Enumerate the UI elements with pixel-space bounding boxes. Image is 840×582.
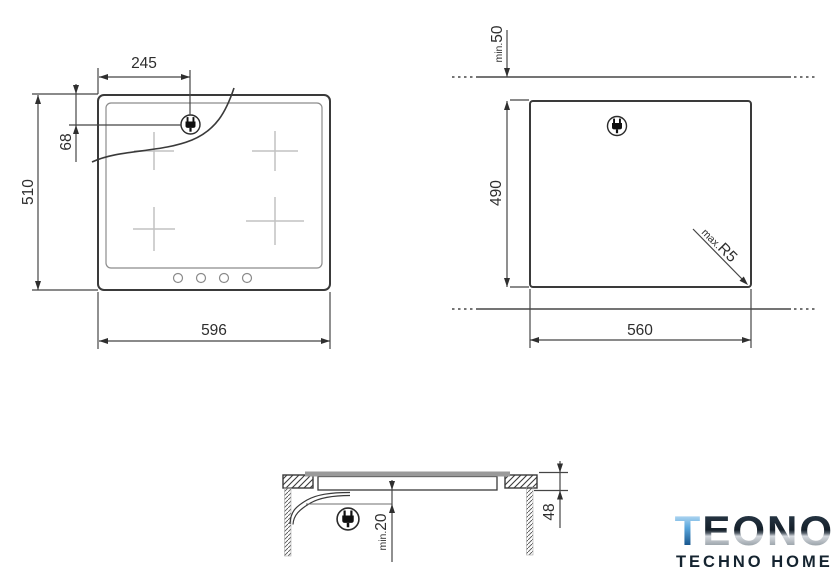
dim-cutout-height: 490 — [488, 100, 529, 287]
arrowhead — [181, 74, 190, 80]
power-plug-icon — [608, 117, 627, 136]
installation-section-view: min.20 48 — [283, 461, 568, 562]
dim-plug-offset-x-label: 245 — [131, 55, 157, 72]
dim-value: 50 — [489, 25, 506, 43]
arrowhead — [35, 281, 41, 290]
dim-hob-depth-label: 48 — [541, 503, 558, 520]
control-knob — [197, 274, 206, 283]
arrowhead — [742, 337, 751, 343]
arrowhead — [557, 491, 563, 500]
counter-block-right — [505, 475, 537, 488]
control-knob — [220, 274, 229, 283]
dim-hob-width-label: 596 — [201, 322, 227, 339]
dim-cutout-width-label: 560 — [627, 322, 653, 339]
arrowhead — [73, 85, 79, 94]
hob-top-view: 245 68 510 596 — [20, 55, 330, 349]
control-knob — [243, 274, 252, 283]
brand-logo: TEONO TECHNO HOME — [675, 512, 834, 570]
arrowhead — [504, 278, 510, 287]
installation-drawing: 245 68 510 596 — [0, 0, 840, 582]
counter-block-left — [283, 475, 313, 488]
dim-cutout-width: 560 — [530, 289, 751, 348]
dim-rear-clearance: min.50 — [489, 25, 510, 77]
power-plug-icon — [181, 115, 200, 134]
dim-value: 20 — [373, 513, 390, 531]
arrowhead — [530, 337, 539, 343]
arrowhead — [99, 338, 108, 344]
brand-name: TEONO — [675, 512, 834, 551]
dim-prefix: min. — [377, 531, 389, 551]
dim-cutout-height-label: 490 — [488, 180, 505, 206]
arrowhead — [504, 68, 510, 77]
dim-hob-height-label: 510 — [20, 179, 37, 205]
dim-rear-clearance-label: min.50 — [489, 25, 506, 62]
cutout-outline — [530, 101, 751, 287]
dim-plug-offset-y-label: 68 — [58, 133, 75, 150]
dim-hob-width: 596 — [98, 292, 330, 349]
arrowhead — [389, 504, 395, 513]
glass-surface — [305, 472, 510, 477]
arrowhead — [504, 101, 510, 110]
dim-below-clearance: min.20 — [373, 480, 395, 562]
arrowhead — [73, 125, 79, 134]
dim-hob-depth: 48 — [534, 461, 568, 528]
arrowhead — [99, 74, 108, 80]
arrowhead — [557, 464, 563, 473]
dim-below-clearance-label: min.20 — [373, 513, 390, 550]
hob-body-section — [318, 477, 497, 491]
arrowhead — [35, 95, 41, 104]
worktop-cutout-view: min.50 490 560 max.R5 — [452, 25, 818, 348]
brand-name-initial: T — [675, 512, 703, 551]
power-plug-icon — [337, 508, 359, 530]
arrowhead — [321, 338, 330, 344]
cabinet-panel-right — [527, 487, 534, 555]
dim-prefix: min. — [493, 43, 505, 63]
brand-name-rest: EONO — [702, 512, 834, 551]
dim-hob-height: 510 — [20, 94, 98, 290]
control-knob — [174, 274, 183, 283]
drawing-svg: 245 68 510 596 — [0, 0, 840, 582]
brand-tagline: TECHNO HOME — [675, 554, 834, 571]
